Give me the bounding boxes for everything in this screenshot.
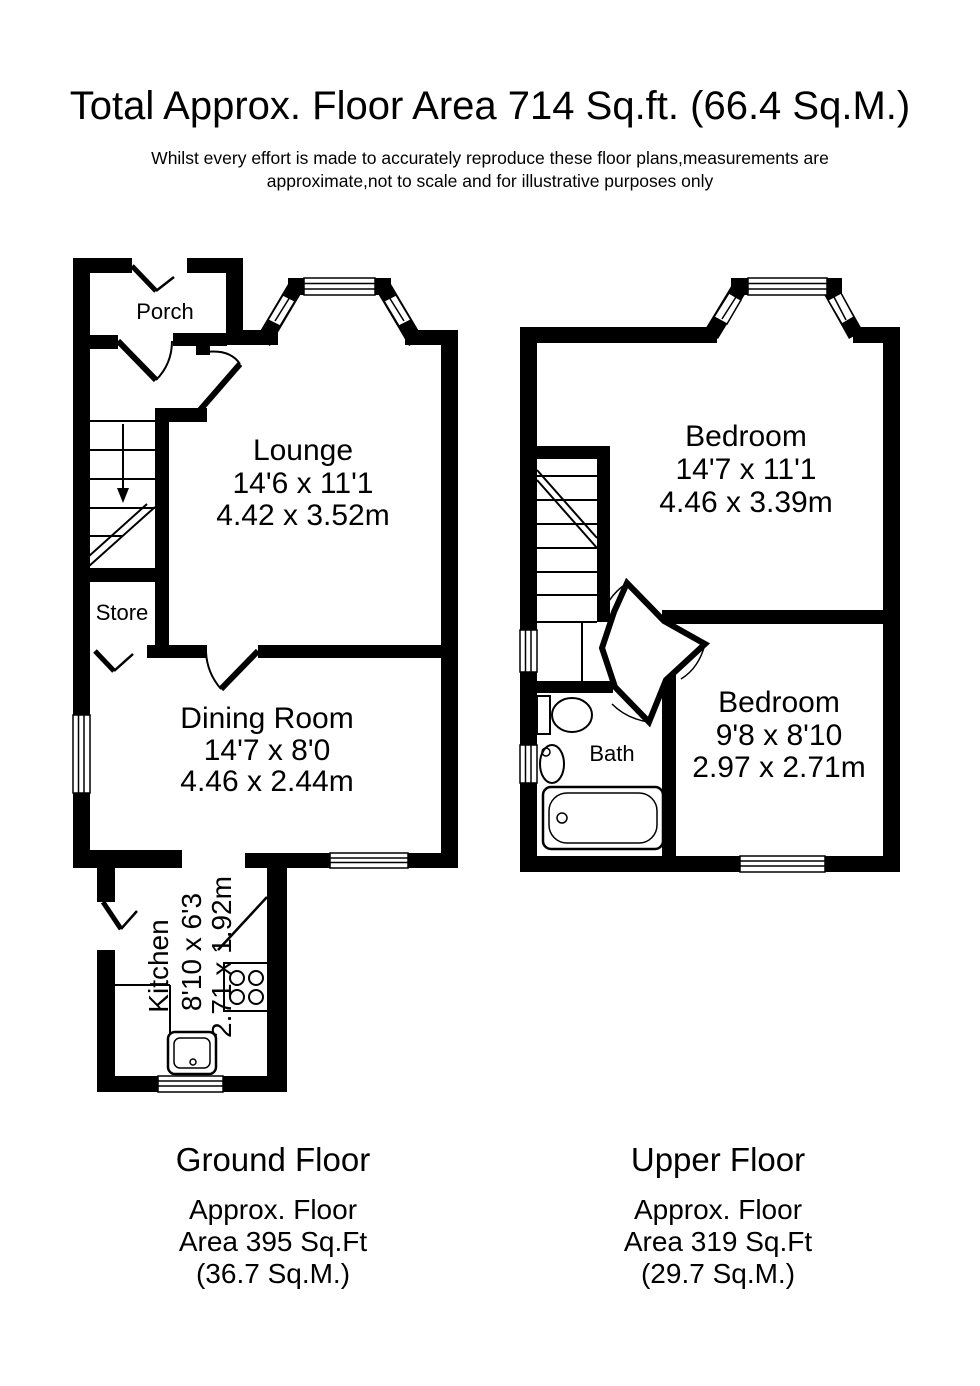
room-label-store: Store: [96, 600, 149, 625]
room-dim-bedroom1-imperial: 14'7 x 11'1: [675, 453, 816, 486]
ground-floor-plan: Porch Lounge 14'6 x 11'1 4.42 x 3.52m St…: [73, 258, 458, 1092]
window: [520, 630, 537, 672]
window: [73, 715, 90, 793]
room-dim-dining-metric: 4.46 x 2.44m: [180, 765, 353, 798]
window: [740, 856, 825, 872]
room-label-kitchen: Kitchen: [143, 919, 174, 1012]
room-dim-kitchen-imperial: 8'10 x 6'3: [176, 893, 207, 1011]
floorplan-page: Total Approx. Floor Area 714 Sq.ft. (66.…: [0, 0, 980, 1386]
ground-floor-area-line2: Area 395 Sq.Ft: [73, 1226, 473, 1258]
room-dim-lounge-imperial: 14'6 x 11'1: [232, 467, 373, 500]
porch-hall-door-swing: [118, 341, 172, 380]
landing-partition: [537, 622, 597, 681]
ground-floor-area-line3: (36.7 Sq.M.): [73, 1258, 473, 1290]
room-dim-kitchen-metric: 2.71 x 1.92m: [206, 876, 237, 1038]
upper-floor-area-line2: Area 319 Sq.Ft: [518, 1226, 918, 1258]
room-label-lounge: Lounge: [253, 434, 353, 467]
entrance-door-swing: [132, 266, 174, 291]
window: [520, 745, 537, 783]
upper-floor-name: Upper Floor: [518, 1141, 918, 1179]
upper-floor-area-line3: (29.7 Sq.M.): [518, 1258, 918, 1290]
ground-floor-area-line1: Approx. Floor: [73, 1194, 473, 1226]
bathtub: [543, 787, 663, 849]
stairs-direction-arrow: [117, 424, 129, 503]
landing-door-swing: [601, 583, 705, 722]
toilet: [537, 696, 592, 734]
dining-door-swing: [206, 651, 258, 689]
room-label-porch: Porch: [136, 299, 193, 324]
room-label-bedroom1: Bedroom: [685, 420, 807, 453]
window: [330, 853, 408, 868]
room-label-bath: Bath: [589, 741, 634, 766]
upper-floor-caption: Upper Floor Approx. Floor Area 319 Sq.Ft…: [518, 1141, 918, 1290]
wash-basin: [540, 745, 564, 783]
room-dim-bedroom1-metric: 4.46 x 3.39m: [659, 486, 832, 519]
room-dim-bedroom2-metric: 2.97 x 2.71m: [692, 751, 865, 784]
upper-floor-area-line1: Approx. Floor: [518, 1194, 918, 1226]
room-dim-lounge-metric: 4.42 x 3.52m: [216, 499, 389, 532]
room-dim-dining-imperial: 14'7 x 8'0: [204, 734, 331, 767]
room-label-bedroom2: Bedroom: [718, 686, 840, 719]
room-dim-bedroom2-imperial: 9'8 x 8'10: [716, 719, 843, 752]
room-label-dining: Dining Room: [180, 702, 353, 735]
store-door-swing: [95, 651, 133, 671]
kitchen-side-door-swing: [103, 902, 137, 929]
ground-floor-caption: Ground Floor Approx. Floor Area 395 Sq.F…: [73, 1141, 473, 1290]
stairs-up: [537, 470, 597, 595]
lounge-door-swing: [200, 352, 240, 411]
window: [158, 1076, 223, 1092]
ground-floor-name: Ground Floor: [73, 1141, 473, 1179]
upper-floor-plan: Bedroom 14'7 x 11'1 4.46 x 3.39m Bedroom…: [520, 278, 900, 872]
